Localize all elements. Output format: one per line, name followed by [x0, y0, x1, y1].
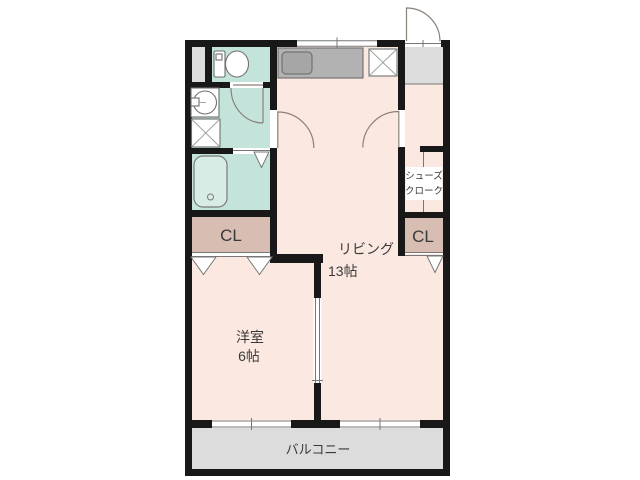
closet-left-label: CL [220, 226, 242, 245]
wall-sanitary-right-lower [270, 148, 277, 263]
toilet-bowl [226, 51, 249, 77]
wall-balcony-1 [192, 420, 212, 428]
wall-hall-left-lower [398, 147, 405, 256]
wall-balcony-2 [291, 420, 340, 428]
wall-toilet-wash-2 [263, 82, 277, 88]
western-room-size: 6帖 [238, 348, 260, 364]
washing-machine-pan-icon [192, 119, 221, 147]
toilet-icon [214, 51, 249, 77]
shoe-closet-label-line2: クローク [405, 186, 443, 197]
living-room-label: リビング [338, 241, 394, 257]
wall-top-mid [377, 40, 405, 47]
kitchen-sink [282, 52, 312, 74]
washbasin-tap [191, 98, 199, 106]
wall-toilet-left [205, 47, 212, 82]
kitchen-counter-icon [278, 48, 363, 78]
bathtub-icon [194, 156, 227, 207]
wall-bath-closet [192, 210, 277, 217]
washbasin-icon [191, 88, 219, 117]
wall-sanitary-right-upper [270, 47, 277, 110]
wall-toilet-wash-1 [192, 82, 230, 88]
balcony-label: バルコニー [286, 442, 351, 457]
bathtub-body [194, 156, 227, 207]
refrigerator-space-icon [369, 49, 397, 76]
living-room-size: 13帖 [328, 263, 358, 279]
sliding-opening-band [314, 298, 322, 383]
wall-top-left [185, 40, 297, 47]
wall-closet-living [270, 254, 323, 263]
floor-plan-canvas: リビング 13帖 洋室 6帖 CL CL シューズ クローク バルコニー [0, 0, 640, 480]
closet-left-opening [192, 253, 270, 257]
wall-partition-lower [314, 383, 321, 420]
shoe-closet-label-line1: シューズ [405, 170, 443, 182]
wall-balcony-3 [420, 420, 443, 428]
wall-bottom [185, 469, 450, 476]
wall-cloak-bottom [398, 212, 443, 218]
wall-wash-bath [192, 148, 233, 154]
toilet-button [216, 54, 222, 60]
wall-right [443, 40, 450, 476]
floor-plan: リビング 13帖 洋室 6帖 CL CL シューズ クローク バルコニー [0, 0, 640, 480]
pipe-space-floor [192, 47, 205, 82]
entrance-door-swing [407, 8, 441, 42]
wall-partition-upper [314, 263, 321, 298]
wall-cloak-stub [420, 146, 443, 152]
entrance-floor [405, 47, 443, 84]
closet-right-label: CL [412, 227, 434, 246]
western-room-label: 洋室 [236, 329, 264, 345]
entrance-threshold [405, 40, 441, 47]
wall-hall-left-upper [398, 47, 405, 110]
